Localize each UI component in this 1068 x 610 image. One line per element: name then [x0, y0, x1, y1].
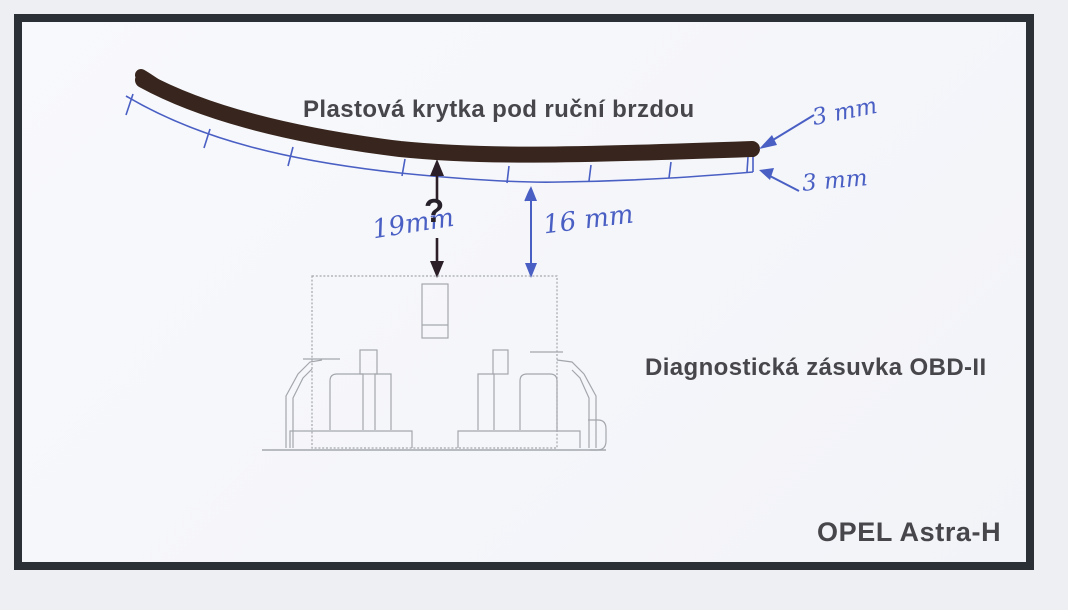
cover-title-label: Plastová krytka pod ruční brzdou [303, 96, 695, 124]
scanned-diagram-page: Plastová krytka pod ruční brzdou Diagnos… [0, 0, 1068, 610]
question-mark: ? [424, 192, 444, 230]
socket-label: Diagnostická zásuvka OBD-II [645, 354, 987, 382]
car-model-label: OPEL Astra-H [817, 517, 1001, 548]
